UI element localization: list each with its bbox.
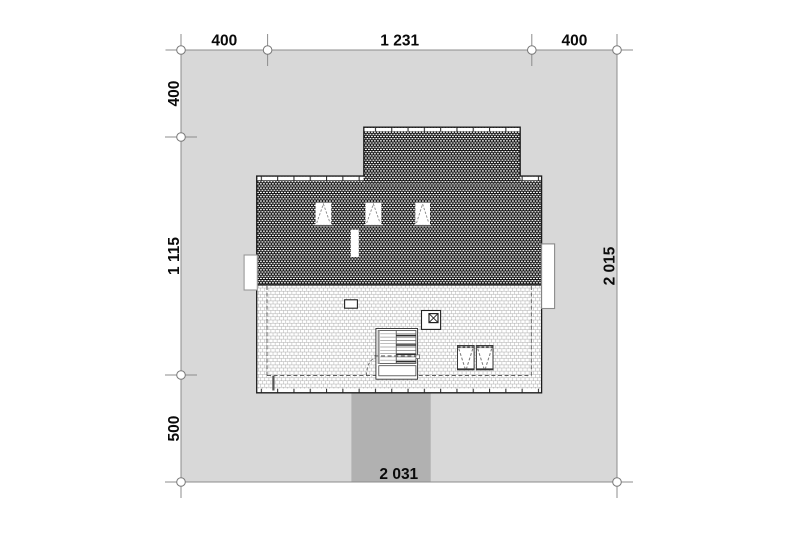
svg-text:400: 400 [561, 33, 587, 50]
svg-text:1 115: 1 115 [166, 237, 183, 275]
svg-text:400: 400 [211, 33, 237, 50]
svg-text:1 231: 1 231 [380, 33, 419, 50]
svg-text:400: 400 [166, 81, 183, 107]
svg-text:500: 500 [166, 416, 183, 442]
svg-text:2 031: 2 031 [379, 466, 418, 483]
svg-text:2 015: 2 015 [602, 246, 619, 285]
